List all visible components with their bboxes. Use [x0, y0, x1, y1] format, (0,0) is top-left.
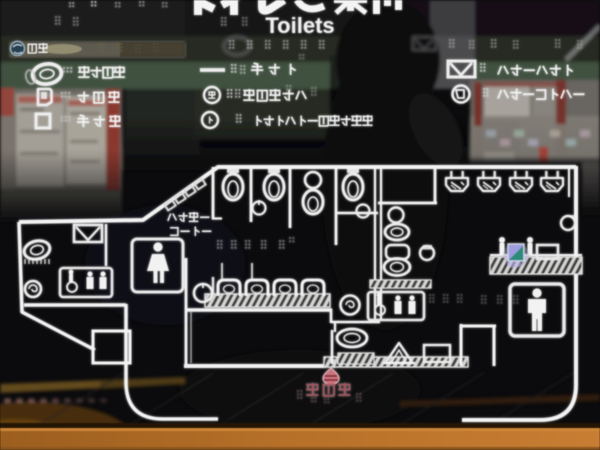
svg-text:Toilets: Toilets — [265, 13, 334, 38]
